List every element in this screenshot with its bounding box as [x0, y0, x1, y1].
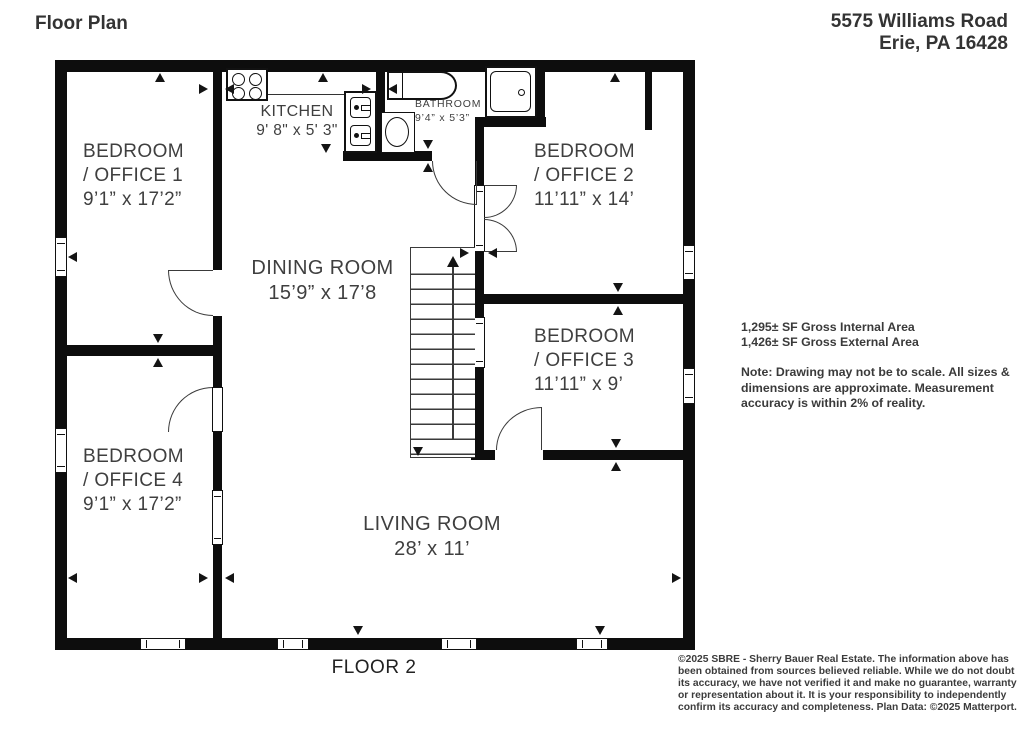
door-arc-bedroom-2-upper: [484, 185, 517, 218]
floor-plan-page: Floor Plan 5575 Williams Road Erie, PA 1…: [0, 0, 1024, 734]
copyright-disclaimer: ©2025 SBRE - Sherry Bauer Real Estate. T…: [678, 654, 1018, 714]
measure-marker: [362, 84, 371, 94]
room-name: BEDROOM: [534, 140, 635, 164]
room-name-2: / OFFICE 2: [534, 164, 635, 188]
measure-marker: [225, 573, 234, 583]
wall-segment: [475, 304, 484, 317]
window: [576, 638, 608, 650]
floor-label: FLOOR 2: [299, 657, 449, 679]
room-dims: 28’ x 11’: [327, 537, 537, 562]
measure-marker: [613, 283, 623, 292]
door-arc-bathroom: [432, 161, 477, 205]
wall-segment: [213, 545, 222, 638]
external-area: 1,426± SF Gross External Area: [741, 335, 919, 350]
address-line-2: Erie, PA 16428: [831, 33, 1008, 55]
measure-marker: [153, 358, 163, 367]
wall-segment: [213, 316, 222, 387]
kitchen-counter-edge: [268, 68, 344, 95]
wall-segment: [475, 252, 484, 294]
room-dims: 9’1” x 17’2”: [83, 493, 184, 517]
room-dims: 11’11” x 9’: [534, 373, 635, 397]
pocket-door-panel: [474, 317, 485, 368]
room-name-2: / OFFICE 1: [83, 164, 184, 188]
measure-marker: [672, 573, 681, 583]
scale-note: Note: Drawing may not be to scale. All s…: [741, 365, 1013, 412]
measure-marker: [423, 163, 433, 172]
wall-exterior-top: [55, 60, 695, 72]
closet-slider-panel: [212, 490, 223, 545]
property-address: 5575 Williams Road Erie, PA 16428: [831, 11, 1008, 54]
room-label-dining-room: DINING ROOM 15’9” x 17’8: [220, 256, 425, 306]
window: [140, 638, 186, 650]
measure-marker: [460, 248, 469, 258]
stove-burner: [249, 73, 262, 86]
window: [441, 638, 477, 650]
wall-exterior-left: [55, 60, 67, 650]
room-label-kitchen: KITCHEN 9' 8" x 5' 3": [217, 102, 377, 140]
door-arc-bedroom-1: [168, 270, 213, 316]
room-label-bedroom-office-1: BEDROOM / OFFICE 1 9’1” x 17’2”: [83, 140, 184, 212]
measure-marker: [488, 248, 497, 258]
window: [683, 368, 695, 404]
bathtub-icon: [387, 71, 457, 100]
room-label-bedroom-office-4: BEDROOM / OFFICE 4 9’1” x 17’2”: [83, 445, 184, 517]
wall-segment: [475, 368, 484, 450]
room-dims: 15’9” x 17’8: [220, 281, 425, 306]
room-name: BATHROOM: [415, 98, 481, 112]
wall-segment: [67, 345, 213, 356]
room-name-2: / OFFICE 3: [534, 349, 635, 373]
wall-segment: [645, 60, 652, 130]
room-label-bedroom-office-2: BEDROOM / OFFICE 2 11’11” x 14’: [534, 140, 635, 212]
address-line-1: 5575 Williams Road: [831, 11, 1008, 33]
measure-marker: [611, 462, 621, 471]
gross-area-info: 1,295± SF Gross Internal Area 1,426± SF …: [741, 320, 919, 350]
measure-marker: [423, 140, 433, 149]
window: [55, 428, 67, 473]
measure-marker: [595, 626, 605, 635]
room-name: BEDROOM: [83, 140, 184, 164]
room-name: KITCHEN: [217, 102, 377, 121]
measure-marker: [610, 73, 620, 82]
room-name: BEDROOM: [83, 445, 184, 469]
room-name-2: / OFFICE 4: [83, 469, 184, 493]
stove-burner: [249, 87, 262, 100]
measure-marker: [318, 73, 328, 82]
stairs-up-arrowhead: [447, 256, 459, 267]
room-label-bedroom-office-3: BEDROOM / OFFICE 3 11’11” x 9’: [534, 325, 635, 397]
shower-drain: [518, 89, 525, 96]
measure-marker: [199, 573, 208, 583]
internal-area: 1,295± SF Gross Internal Area: [741, 320, 919, 335]
toilet-bowl: [385, 117, 409, 147]
wall-segment: [471, 294, 683, 304]
measure-marker: [321, 144, 331, 153]
floor-plan-drawing: BEDROOM / OFFICE 1 9’1” x 17’2” KITCHEN …: [55, 60, 695, 650]
measure-marker: [68, 573, 77, 583]
stairs-down-marker: [413, 447, 423, 456]
measure-marker: [613, 306, 623, 315]
wall-segment: [543, 450, 683, 460]
room-dims: 9’1” x 17’2”: [83, 188, 184, 212]
window: [55, 237, 67, 277]
room-name: DINING ROOM: [220, 256, 425, 281]
room-label-living-room: LIVING ROOM 28’ x 11’: [327, 512, 537, 562]
window: [683, 245, 695, 280]
room-name: LIVING ROOM: [327, 512, 537, 537]
wall-exterior-right: [683, 60, 695, 650]
bathtub-edge: [402, 73, 403, 98]
measure-marker: [388, 84, 397, 94]
measure-marker: [155, 73, 165, 82]
door-arc-bedroom-4: [168, 387, 213, 432]
wall-segment: [213, 432, 222, 490]
room-dims: 9’4” x 5’3”: [415, 112, 481, 126]
room-dims: 11’11” x 14’: [534, 188, 635, 212]
shower-icon: [485, 66, 537, 118]
stairs-up-arrow-icon: [452, 267, 454, 440]
measure-marker: [68, 252, 77, 262]
wall-segment: [213, 60, 222, 270]
room-label-bathroom: BATHROOM 9’4” x 5’3”: [415, 98, 481, 125]
page-title: Floor Plan: [35, 13, 128, 35]
door-leaf-bedroom-4: [212, 387, 223, 432]
wall-segment: [475, 117, 546, 127]
measure-marker: [611, 439, 621, 448]
measure-marker: [353, 626, 363, 635]
toilet-icon: [381, 112, 415, 153]
window: [277, 638, 309, 650]
measure-marker: [225, 84, 234, 94]
door-arc-bedroom-3: [496, 407, 542, 450]
room-dims: 9' 8" x 5' 3": [217, 121, 377, 140]
measure-marker: [153, 334, 163, 343]
measure-marker: [199, 84, 208, 94]
room-name: BEDROOM: [534, 325, 635, 349]
